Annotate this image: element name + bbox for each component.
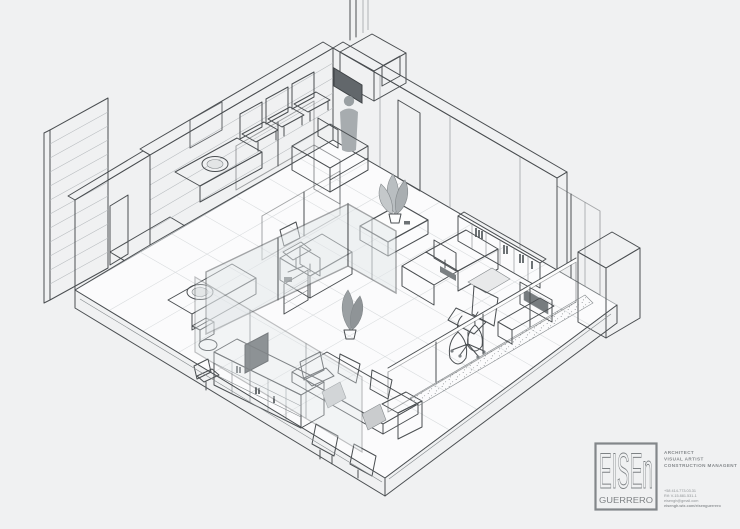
contact-line: eisengh.wix.com/eisenguerrero <box>664 504 721 508</box>
pillar-se-face <box>606 248 640 338</box>
person-head <box>344 96 354 106</box>
contact-line: +58 414-773.03.31 <box>664 489 696 493</box>
pillar-top <box>578 232 640 268</box>
logo-roles: ARCHITECT VISUAL ARTIST CONSTRUCTION MAN… <box>664 450 737 468</box>
logo-contact: +58 414-773.03.31 Rif: V-15.881.531-1 ei… <box>664 489 721 508</box>
entry-wall-edge <box>44 130 50 303</box>
axonometric-office-drawing: EISEn GUERRERO ARCHITECT VISUAL ARTIST C… <box>0 0 740 529</box>
contact-line: eisengh@gmail.com <box>664 499 698 503</box>
logo-wordmark: EISEn <box>599 443 653 499</box>
logo-subname: GUERRERO <box>599 495 653 505</box>
bath-outer-wall-top-band <box>68 151 150 200</box>
concrete-duct-right-face <box>374 53 406 101</box>
logo: EISEn GUERRERO ARCHITECT VISUAL ARTIST C… <box>596 443 738 510</box>
remote <box>404 221 410 225</box>
bath-door-opening <box>110 195 128 265</box>
role-line: ARCHITECT <box>664 450 694 455</box>
contact-line: Rif: V-15.881.531-1 <box>664 494 697 498</box>
bath1-sink-basin <box>207 160 223 169</box>
receptionist-figure <box>340 96 358 152</box>
role-line: CONSTRUCTION MANAGENT <box>664 463 737 468</box>
role-line: VISUAL ARTIST <box>664 457 704 462</box>
drawing-sheet: EISEn GUERRERO ARCHITECT VISUAL ARTIST C… <box>0 0 740 529</box>
ne-wall-doorway <box>398 100 420 191</box>
bath1-mirror <box>190 102 222 148</box>
person-body <box>340 109 358 153</box>
